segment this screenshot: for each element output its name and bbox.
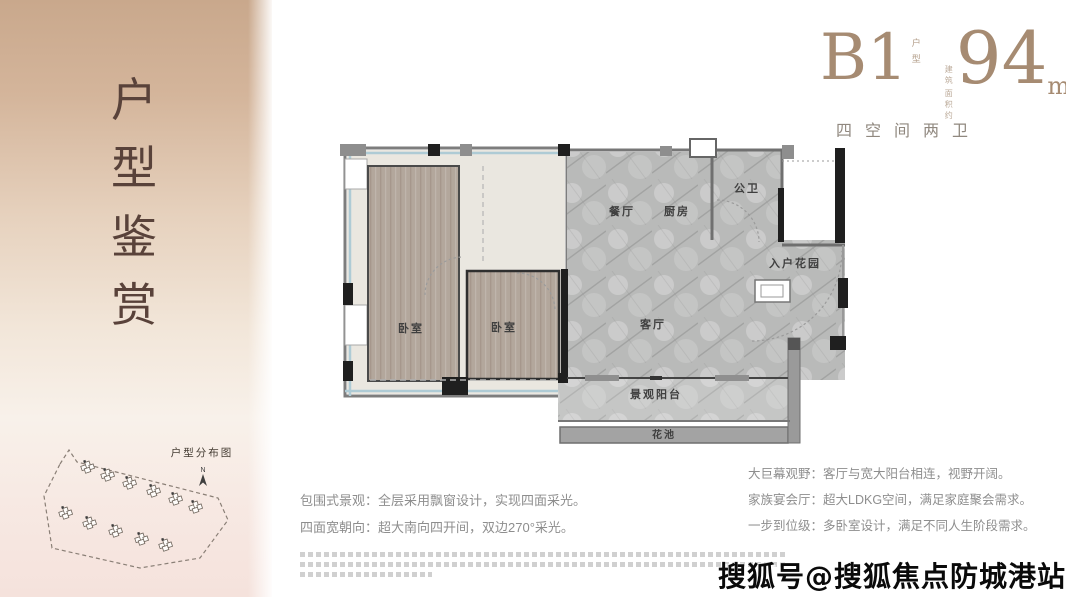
sliding-door-panel bbox=[715, 375, 749, 381]
wall-dark bbox=[838, 278, 848, 308]
room-label-kitchen: 厨房 bbox=[664, 204, 690, 218]
pillar bbox=[343, 283, 353, 305]
room-label-bedroom-mid: 卧室 bbox=[491, 320, 517, 334]
watermark: 搜狐号@搜狐焦点防城港站 bbox=[718, 555, 1066, 595]
north-label: N bbox=[200, 467, 205, 474]
wall bbox=[788, 338, 800, 350]
room-bedroom-left bbox=[368, 166, 459, 381]
unit-tag: 户 型 bbox=[912, 36, 921, 65]
pillar bbox=[558, 373, 568, 383]
room-label-balcony: 景观阳台 bbox=[629, 387, 682, 401]
pillar bbox=[340, 144, 366, 156]
page-title-char: 赏 bbox=[101, 281, 167, 329]
pillar bbox=[460, 144, 472, 156]
page: 户 型 鉴 赏 bbox=[0, 0, 1066, 597]
window-box bbox=[690, 139, 716, 157]
pillar bbox=[558, 144, 570, 156]
fine-print-line bbox=[300, 552, 788, 557]
fine-print bbox=[300, 552, 788, 582]
north-arrow-icon bbox=[199, 474, 207, 486]
site-buildings bbox=[57, 458, 203, 552]
bay-window bbox=[345, 159, 367, 189]
sliding-door-panel bbox=[650, 376, 662, 380]
pillar bbox=[782, 145, 794, 159]
site-plan-map: 户型分布图 N bbox=[22, 436, 272, 591]
wall-dark bbox=[561, 269, 568, 381]
page-title-char: 型 bbox=[101, 144, 167, 192]
unit-code: B1 bbox=[820, 26, 908, 90]
feature-line: 一步到位级：多卧室设计，满足不同人生阶段需求。 bbox=[748, 513, 1036, 539]
sliding-door-panel bbox=[585, 375, 619, 381]
page-title: 户 型 鉴 赏 bbox=[101, 76, 167, 329]
area-unit: m² bbox=[1047, 72, 1066, 100]
room-label-bedroom-left: 卧室 bbox=[398, 321, 424, 335]
feature-line: 大巨幕观野：客厅与宽大阳台相连，视野开阔。 bbox=[748, 461, 1036, 487]
page-title-char: 户 bbox=[101, 76, 167, 124]
feature-line: 包围式景观：全层采用飘窗设计，实现四面采光。 bbox=[300, 487, 586, 514]
unit-header: B1 户 型 建筑 面积约 94 m² bbox=[820, 26, 1066, 121]
room-label-bathroom: 公卫 bbox=[734, 182, 760, 195]
unit-tag-char: 户 bbox=[912, 36, 921, 49]
room-label-living: 客厅 bbox=[639, 317, 666, 331]
wall-dark bbox=[778, 188, 784, 242]
features-right: 大巨幕观野：客厅与宽大阳台相连，视野开阔。 家族宴会厅：超大LDKG空间，满足家… bbox=[748, 461, 1036, 539]
room-label-flower-bed: 花池 bbox=[652, 428, 676, 441]
pillar bbox=[343, 361, 353, 381]
fine-print-line bbox=[300, 572, 432, 577]
wall-dark bbox=[830, 336, 846, 350]
cabinet-inner bbox=[761, 285, 783, 297]
room-bathroom bbox=[712, 150, 782, 242]
wall bbox=[788, 338, 800, 443]
page-title-char: 鉴 bbox=[101, 213, 167, 261]
site-plan-label: 户型分布图 bbox=[171, 446, 234, 459]
room-label-dining: 餐厅 bbox=[608, 204, 635, 218]
room-dining-kitchen bbox=[567, 152, 712, 245]
feature-line: 家族宴会厅：超大LDKG空间，满足家庭聚会需求。 bbox=[748, 487, 1036, 513]
sidebar: 户 型 鉴 赏 bbox=[0, 0, 272, 597]
room-label-entry-garden: 入户花园 bbox=[769, 256, 821, 270]
area-prefix-line: 建筑 bbox=[945, 64, 953, 86]
bay-window bbox=[345, 305, 367, 345]
area-prefix: 建筑 面积约 bbox=[945, 64, 953, 121]
area-value: 94 bbox=[956, 22, 1048, 94]
floor-plan: 餐厅 厨房 公卫 入户花园 卧室 卧室 客厅 景观阳台 花池 bbox=[330, 133, 860, 448]
feature-line: 四面宽朝向：超大南向四开间，双边270°采光。 bbox=[300, 514, 586, 541]
unit-tag-char: 型 bbox=[912, 52, 921, 65]
pillar bbox=[660, 146, 672, 156]
fine-print-line bbox=[300, 562, 788, 567]
wall-dark bbox=[835, 148, 845, 243]
pillar bbox=[428, 144, 440, 156]
features-left: 包围式景观：全层采用飘窗设计，实现四面采光。 四面宽朝向：超大南向四开间，双边2… bbox=[300, 487, 586, 541]
